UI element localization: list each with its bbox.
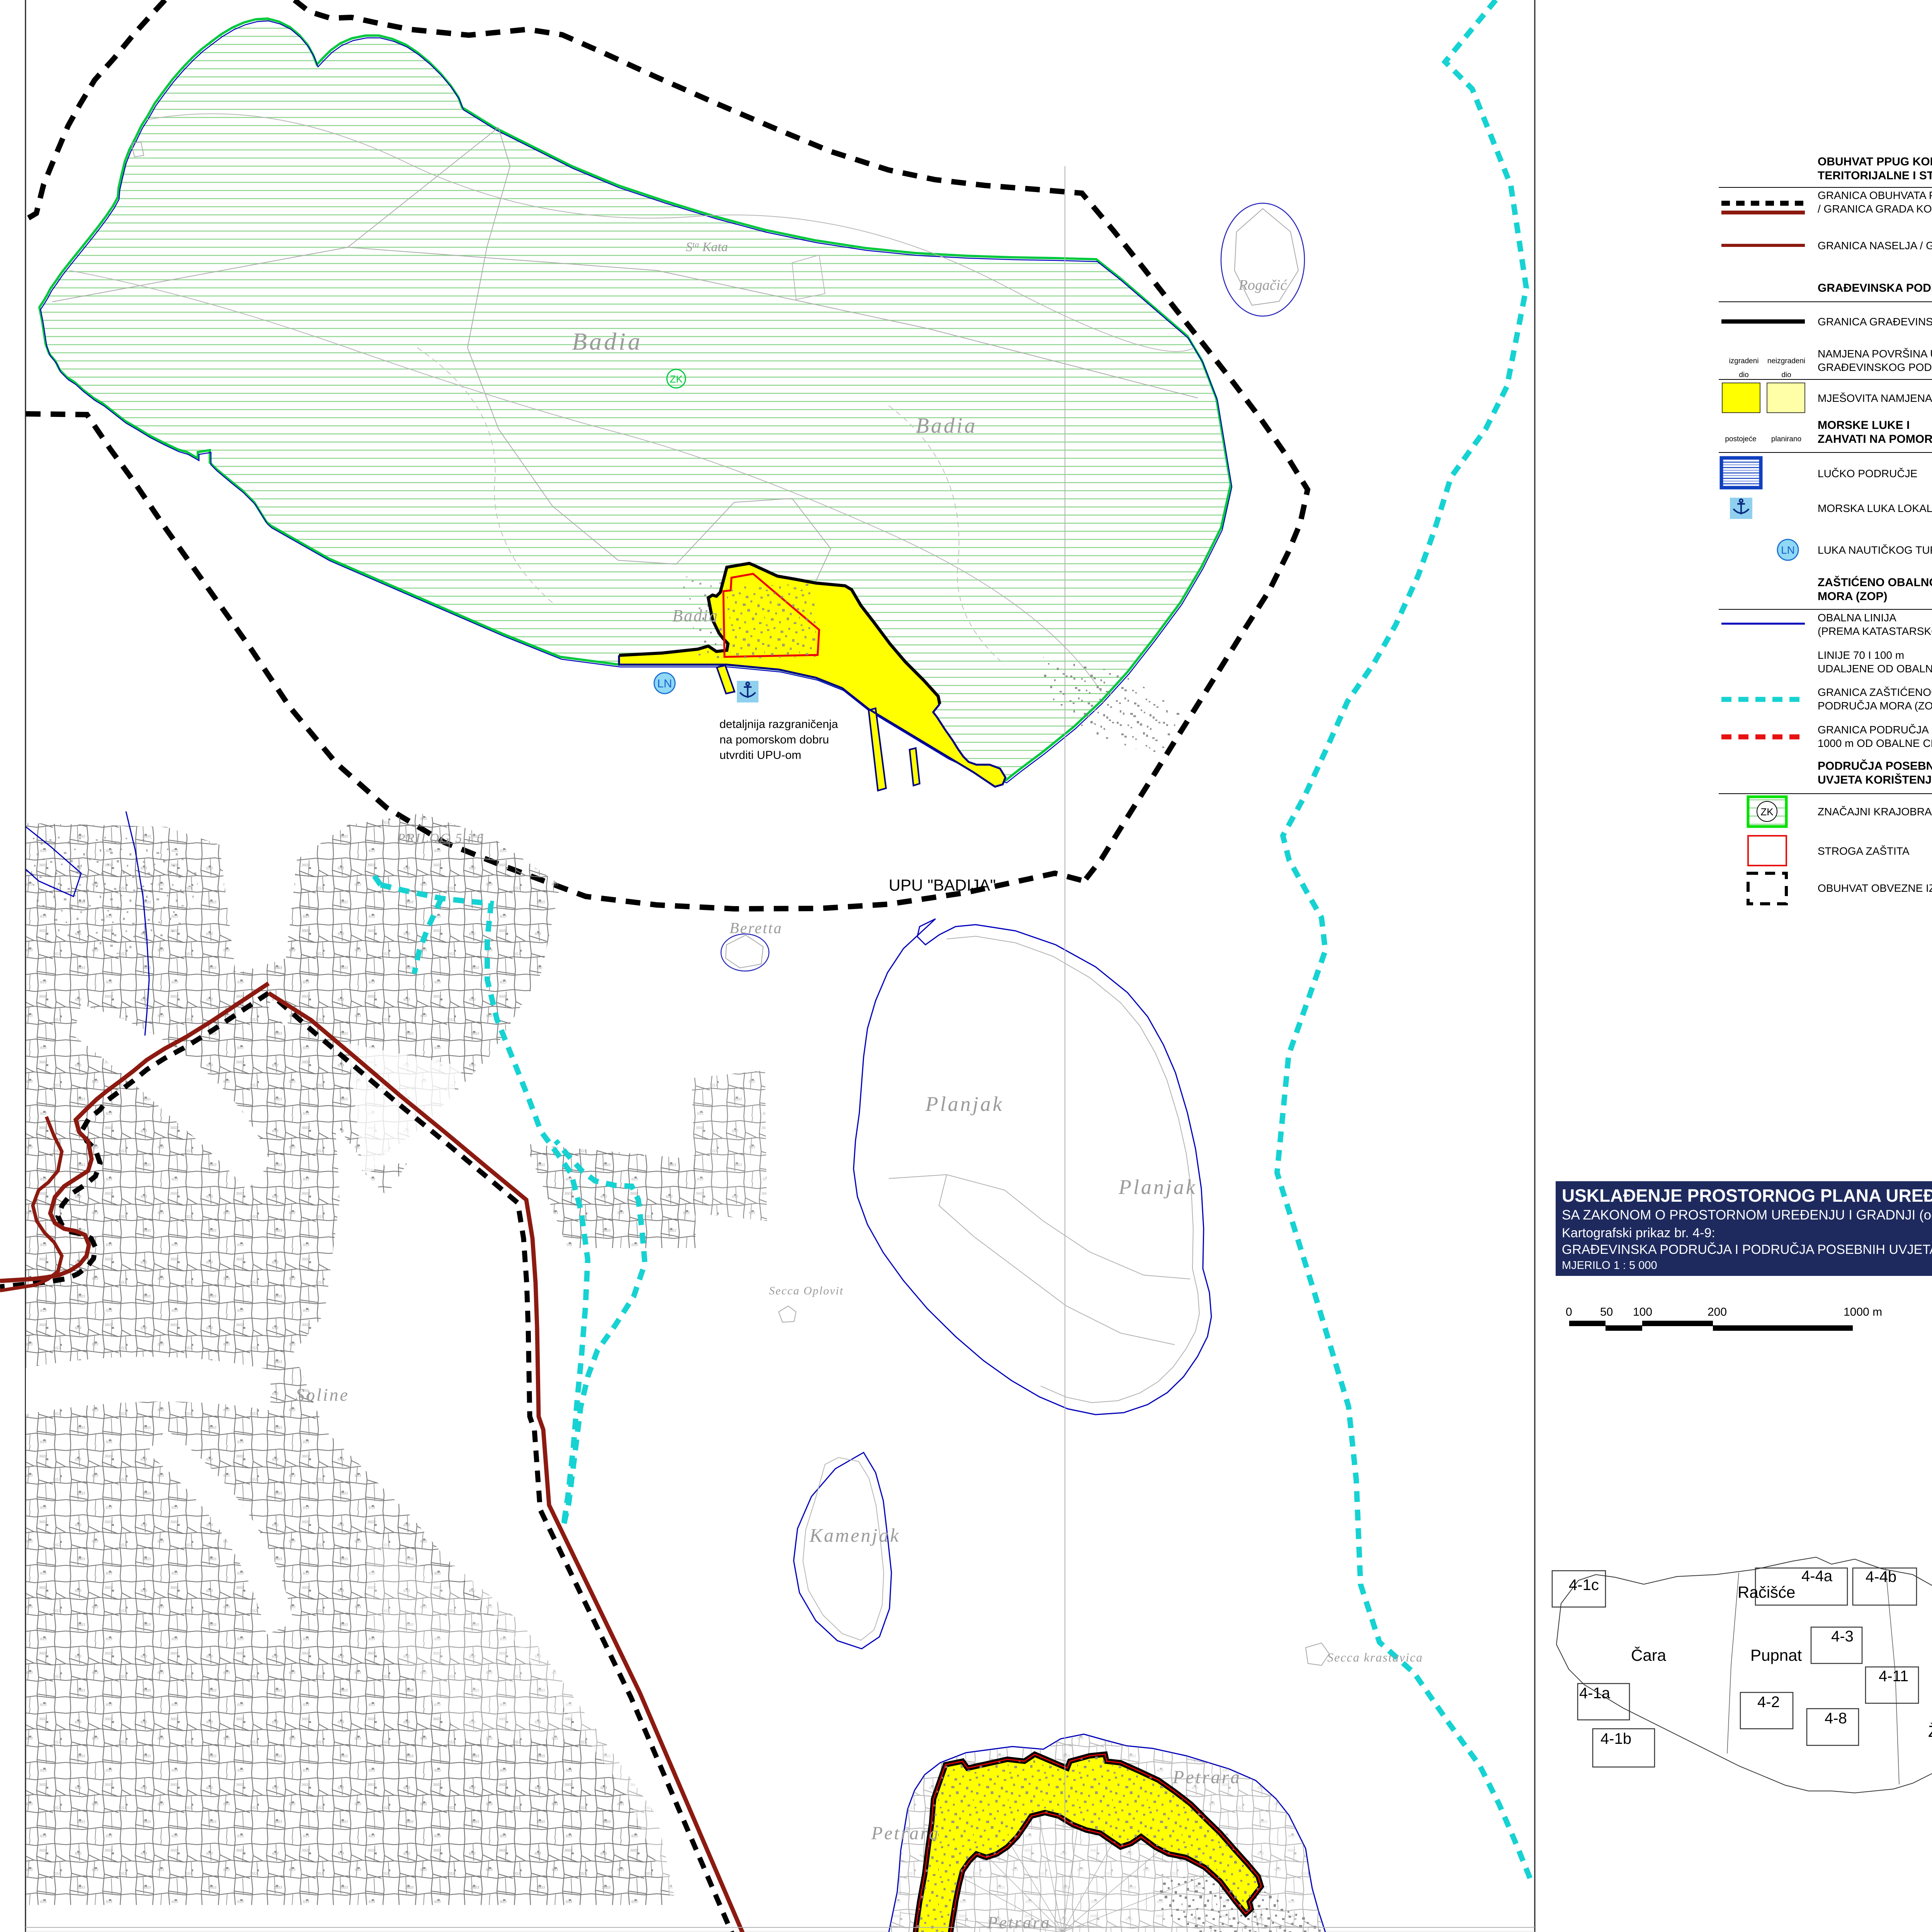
svg-text:ZK: ZK bbox=[1760, 806, 1774, 818]
svg-text:Planjak: Planjak bbox=[925, 1092, 1004, 1116]
svg-text:4-1c: 4-1c bbox=[1569, 1577, 1599, 1594]
svg-text:4-4b: 4-4b bbox=[1866, 1568, 1896, 1585]
svg-text:4-1a: 4-1a bbox=[1579, 1685, 1611, 1702]
svg-text:Petrara: Petrara bbox=[871, 1823, 940, 1844]
svg-text:UPU "BADIJA": UPU "BADIJA" bbox=[889, 876, 996, 894]
svg-text:Petrara: Petrara bbox=[987, 1913, 1051, 1932]
svg-text:Soline: Soline bbox=[296, 1385, 349, 1405]
svg-text:LN: LN bbox=[657, 677, 672, 690]
svg-text:Račišće: Račišće bbox=[1738, 1583, 1795, 1601]
svg-text:Čara: Čara bbox=[1631, 1646, 1667, 1664]
svg-text:(PREMA KATASTARSKOJ PODLOZI): (PREMA KATASTARSKOJ PODLOZI) bbox=[1818, 625, 1932, 637]
svg-text:0: 0 bbox=[1566, 1306, 1572, 1318]
svg-text:/ GRANICA GRADA KORČULE: / GRANICA GRADA KORČULE bbox=[1818, 203, 1932, 215]
svg-text:100: 100 bbox=[1633, 1306, 1652, 1318]
svg-text:NAMJENA POVRŠINA UNUTAR: NAMJENA POVRŠINA UNUTAR bbox=[1818, 348, 1932, 360]
svg-text:4-8: 4-8 bbox=[1825, 1710, 1847, 1727]
svg-text:GRAĐEVINSKA PODRUČJA: GRAĐEVINSKA PODRUČJA bbox=[1818, 281, 1932, 294]
svg-text:postojeće: postojeće bbox=[1725, 435, 1756, 443]
svg-text:GRAĐEVINSKOG PODRUČJA NASELJA: GRAĐEVINSKOG PODRUČJA NASELJA bbox=[1818, 361, 1932, 373]
svg-text:GRANICA NASELJA / GRANICA K.0.: GRANICA NASELJA / GRANICA K.0. bbox=[1818, 240, 1932, 252]
svg-text:PRILOG 5 i 6: PRILOG 5 i 6 bbox=[397, 831, 485, 845]
svg-text:utvrditi UPU-om: utvrditi UPU-om bbox=[719, 749, 801, 762]
svg-text:4-1b: 4-1b bbox=[1600, 1730, 1631, 1747]
svg-text:Planjak: Planjak bbox=[1118, 1175, 1197, 1199]
svg-text:Badia: Badia bbox=[672, 606, 719, 625]
svg-text:GRANICA OBUHVATA PPUG KORČULE: GRANICA OBUHVATA PPUG KORČULE / bbox=[1818, 189, 1932, 201]
svg-text:dio: dio bbox=[1739, 371, 1748, 379]
svg-text:Badia: Badia bbox=[916, 414, 977, 438]
svg-text:na pomorskom dobru: na pomorskom dobru bbox=[719, 733, 829, 746]
svg-text:50: 50 bbox=[1600, 1306, 1613, 1318]
svg-text:Pupnat: Pupnat bbox=[1750, 1646, 1802, 1664]
svg-text:MORSKA LUKA LOKALNOG ZNAČAJA: MORSKA LUKA LOKALNOG ZNAČAJA bbox=[1818, 502, 1932, 514]
svg-text:detaljnija razgraničenja: detaljnija razgraničenja bbox=[719, 718, 838, 731]
svg-text:MORA (ZOP): MORA (ZOP) bbox=[1818, 590, 1888, 603]
svg-text:PODRUČJA POSEBNIH: PODRUČJA POSEBNIH bbox=[1818, 759, 1932, 772]
svg-text:GRANICA GRAĐEVINSKOG PODRUČJA: GRANICA GRAĐEVINSKOG PODRUČJA bbox=[1818, 316, 1932, 328]
svg-text:4-2: 4-2 bbox=[1757, 1694, 1780, 1711]
svg-text:1000 m: 1000 m bbox=[1844, 1306, 1882, 1318]
svg-text:izgradeni: izgradeni bbox=[1729, 357, 1759, 365]
svg-text:PODRUČJA MORA (ZOP-a): PODRUČJA MORA (ZOP-a) bbox=[1818, 700, 1932, 712]
svg-text:1000 m OD OBALNE CRTE NA OTOKU: 1000 m OD OBALNE CRTE NA OTOKU bbox=[1818, 737, 1932, 749]
svg-text:TERITORIJALNE I STATISTIČKE GR: TERITORIJALNE I STATISTIČKE GRANICE bbox=[1818, 169, 1932, 182]
svg-text:ZAHVATI NA POMORSKOM DOBRU: ZAHVATI NA POMORSKOM DOBRU bbox=[1818, 433, 1932, 446]
svg-text:STROGA ZAŠTITA: STROGA ZAŠTITA bbox=[1818, 845, 1910, 857]
svg-text:LUČKO PODRUČJE: LUČKO PODRUČJE bbox=[1818, 468, 1917, 480]
svg-text:Rogačić: Rogačić bbox=[1238, 277, 1287, 293]
svg-text:LINIJE 70 I 100 m: LINIJE 70 I 100 m bbox=[1818, 649, 1904, 661]
svg-text:OBUHVAT OBVEZNE IZRADE UPU-a: OBUHVAT OBVEZNE IZRADE UPU-a bbox=[1818, 882, 1932, 894]
svg-text:GRANICA ZAŠTIĆENOG OBALNOG: GRANICA ZAŠTIĆENOG OBALNOG bbox=[1818, 686, 1932, 698]
svg-text:200: 200 bbox=[1708, 1306, 1727, 1318]
svg-text:LN: LN bbox=[1781, 544, 1795, 556]
svg-text:ZNAČAJNI KRAJOBRAZ: ZNAČAJNI KRAJOBRAZ bbox=[1818, 806, 1932, 818]
svg-text:OBALNA LINIJA: OBALNA LINIJA bbox=[1818, 612, 1896, 624]
svg-text:4-11: 4-11 bbox=[1879, 1668, 1908, 1685]
svg-text:Kamenjak: Kamenjak bbox=[809, 1524, 900, 1546]
svg-text:dio: dio bbox=[1781, 371, 1791, 379]
svg-text:MJEŠOVITA NAMJENA: MJEŠOVITA NAMJENA bbox=[1818, 392, 1932, 404]
svg-text:neizgradeni: neizgradeni bbox=[1767, 357, 1805, 365]
svg-text:Badia: Badia bbox=[572, 328, 643, 355]
svg-text:GRANICA PODRUČJA UNUTAR ZOP-a,: GRANICA PODRUČJA UNUTAR ZOP-a, bbox=[1818, 724, 1932, 736]
svg-text:ZK: ZK bbox=[670, 373, 683, 385]
svg-text:Petrara: Petrara bbox=[1172, 1767, 1241, 1787]
svg-text:LUKA NAUTIČKOG TURIZMA: LUKA NAUTIČKOG TURIZMA bbox=[1818, 544, 1932, 556]
svg-text:Beretta: Beretta bbox=[730, 919, 782, 937]
svg-text:MORSKE LUKE I: MORSKE LUKE I bbox=[1818, 419, 1910, 432]
svg-text:ZAŠTIĆENO OBALNO PODRUČJE: ZAŠTIĆENO OBALNO PODRUČJE bbox=[1818, 576, 1932, 589]
svg-text:Žrnovo: Žrnovo bbox=[1928, 1722, 1932, 1740]
svg-text:4-3: 4-3 bbox=[1831, 1628, 1854, 1645]
svg-text:OBUHVAT PPUG KORČULE;: OBUHVAT PPUG KORČULE; bbox=[1818, 155, 1932, 168]
svg-text:planirano: planirano bbox=[1771, 435, 1801, 443]
svg-text:UDALJENE OD OBALNE LINIJE: UDALJENE OD OBALNE LINIJE bbox=[1818, 663, 1932, 675]
svg-text:Secca krastavica: Secca krastavica bbox=[1327, 1650, 1423, 1664]
svg-text:UVJETA KORIŠTENJA: UVJETA KORIŠTENJA bbox=[1818, 773, 1932, 786]
svg-text:Secca Oplovit: Secca Oplovit bbox=[769, 1284, 844, 1297]
svg-text:4-4a: 4-4a bbox=[1801, 1568, 1833, 1585]
svg-text:Sta Kata: Sta Kata bbox=[686, 240, 728, 254]
